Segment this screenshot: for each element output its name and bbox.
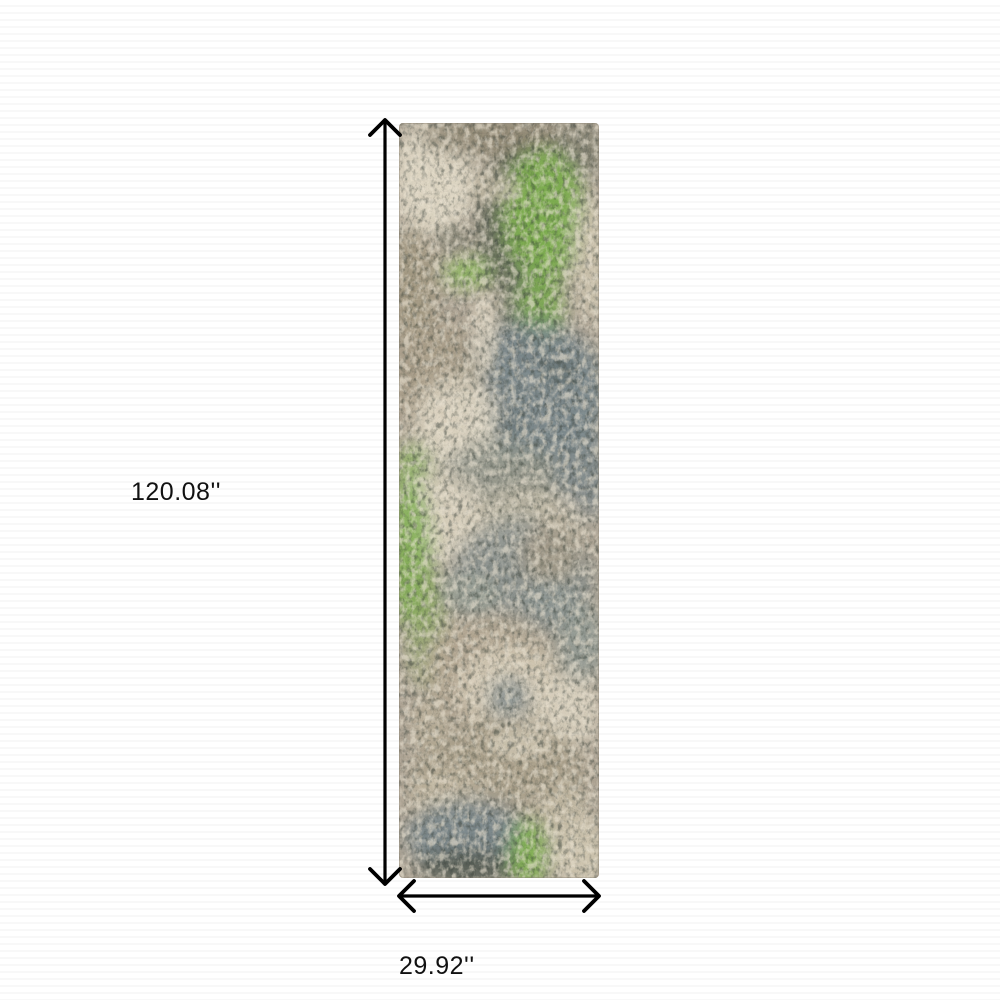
rug-image <box>399 123 599 878</box>
width-dimension-label: 29.92'' <box>399 952 475 981</box>
height-dimension-arrow <box>366 116 404 888</box>
rug-texture <box>399 123 599 878</box>
product-dimension-image: 120.08'' 29.92'' <box>0 0 1000 1000</box>
width-dimension-arrow <box>395 877 603 915</box>
height-dimension-label: 120.08'' <box>131 478 221 507</box>
